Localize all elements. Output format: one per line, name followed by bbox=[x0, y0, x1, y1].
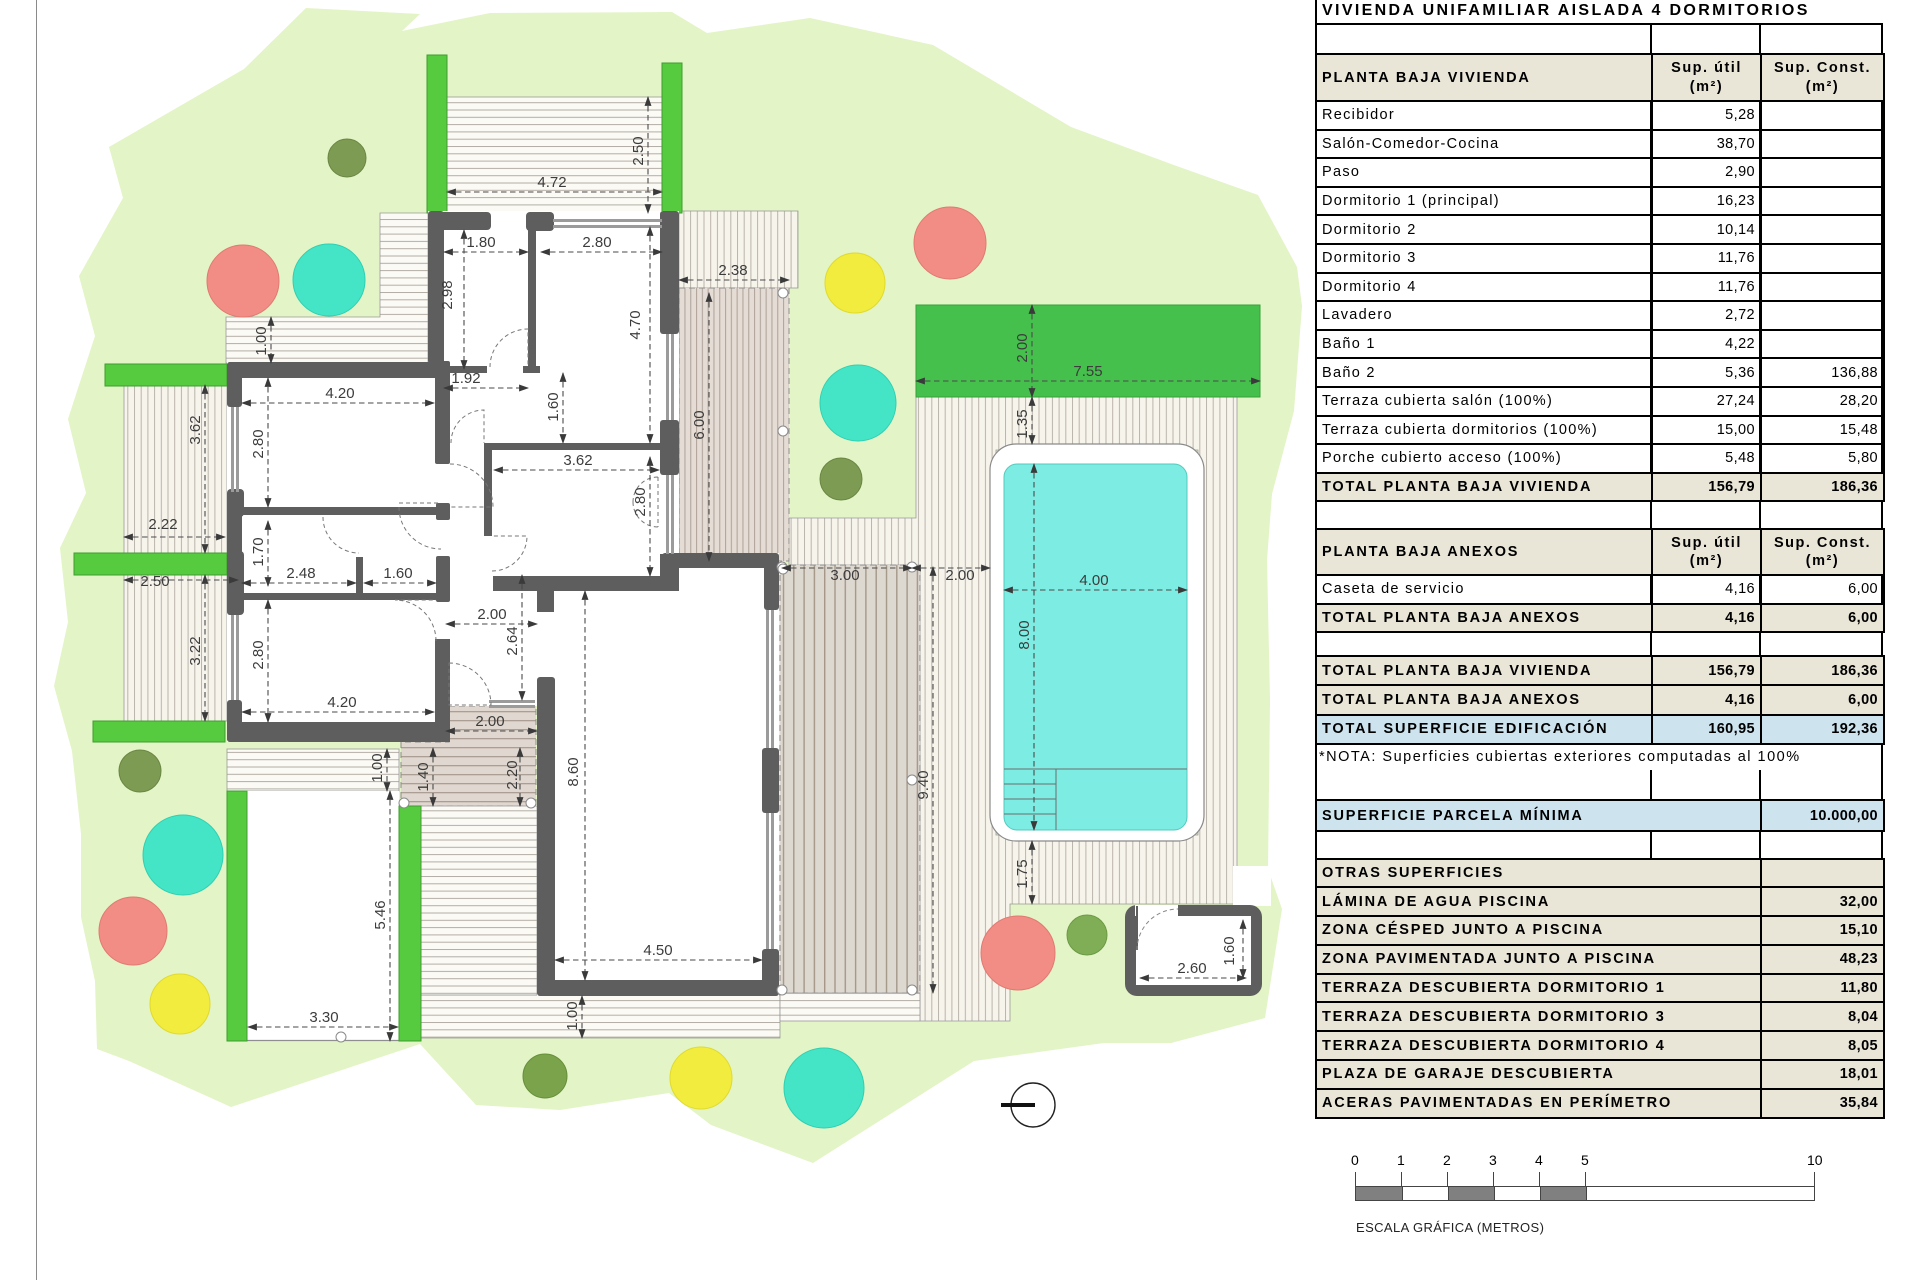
svg-text:1.00: 1.00 bbox=[564, 1001, 581, 1030]
svg-text:3.30: 3.30 bbox=[309, 1009, 338, 1026]
svg-text:2.80: 2.80 bbox=[250, 640, 267, 669]
svg-text:3.22: 3.22 bbox=[187, 636, 204, 665]
svg-text:2.00: 2.00 bbox=[475, 713, 504, 730]
svg-text:1.60: 1.60 bbox=[545, 392, 562, 421]
svg-text:9.40: 9.40 bbox=[915, 770, 932, 799]
svg-text:4.72: 4.72 bbox=[537, 174, 566, 191]
svg-text:3.00: 3.00 bbox=[830, 567, 859, 584]
svg-text:2.22: 2.22 bbox=[148, 516, 177, 533]
svg-text:3.62: 3.62 bbox=[563, 452, 592, 469]
svg-text:1.40: 1.40 bbox=[415, 762, 432, 791]
svg-text:2.60: 2.60 bbox=[1177, 960, 1206, 977]
svg-text:5.46: 5.46 bbox=[372, 900, 389, 929]
svg-text:4.70: 4.70 bbox=[627, 310, 644, 339]
svg-text:3.62: 3.62 bbox=[187, 415, 204, 444]
svg-text:7.55: 7.55 bbox=[1073, 363, 1102, 380]
svg-text:2.00: 2.00 bbox=[1014, 333, 1031, 362]
svg-text:2.80: 2.80 bbox=[632, 487, 649, 516]
svg-text:1.60: 1.60 bbox=[1221, 936, 1238, 965]
svg-text:2.00: 2.00 bbox=[477, 606, 506, 623]
svg-text:8.60: 8.60 bbox=[565, 757, 582, 786]
svg-text:1.80: 1.80 bbox=[466, 234, 495, 251]
svg-text:1.00: 1.00 bbox=[369, 753, 386, 782]
svg-text:1.92: 1.92 bbox=[451, 370, 480, 387]
svg-text:2.80: 2.80 bbox=[582, 234, 611, 251]
svg-text:2.38: 2.38 bbox=[718, 262, 747, 279]
svg-text:2.80: 2.80 bbox=[250, 429, 267, 458]
svg-text:4.20: 4.20 bbox=[327, 694, 356, 711]
svg-text:2.00: 2.00 bbox=[945, 567, 974, 584]
svg-text:1.60: 1.60 bbox=[383, 565, 412, 582]
svg-text:4.20: 4.20 bbox=[325, 385, 354, 402]
svg-text:1.75: 1.75 bbox=[1014, 859, 1031, 888]
svg-text:2.50: 2.50 bbox=[630, 136, 647, 165]
svg-text:6.00: 6.00 bbox=[691, 410, 708, 439]
svg-text:1.70: 1.70 bbox=[250, 537, 267, 566]
svg-text:2.48: 2.48 bbox=[286, 565, 315, 582]
svg-text:2.20: 2.20 bbox=[504, 760, 521, 789]
svg-text:1.35: 1.35 bbox=[1014, 409, 1031, 438]
svg-text:1.00: 1.00 bbox=[253, 326, 270, 355]
svg-text:2.50: 2.50 bbox=[140, 573, 169, 590]
svg-text:4.50: 4.50 bbox=[643, 942, 672, 959]
svg-text:4.00: 4.00 bbox=[1079, 572, 1108, 589]
svg-text:2.98: 2.98 bbox=[439, 280, 456, 309]
svg-text:2.64: 2.64 bbox=[504, 626, 521, 655]
svg-text:8.00: 8.00 bbox=[1016, 620, 1033, 649]
